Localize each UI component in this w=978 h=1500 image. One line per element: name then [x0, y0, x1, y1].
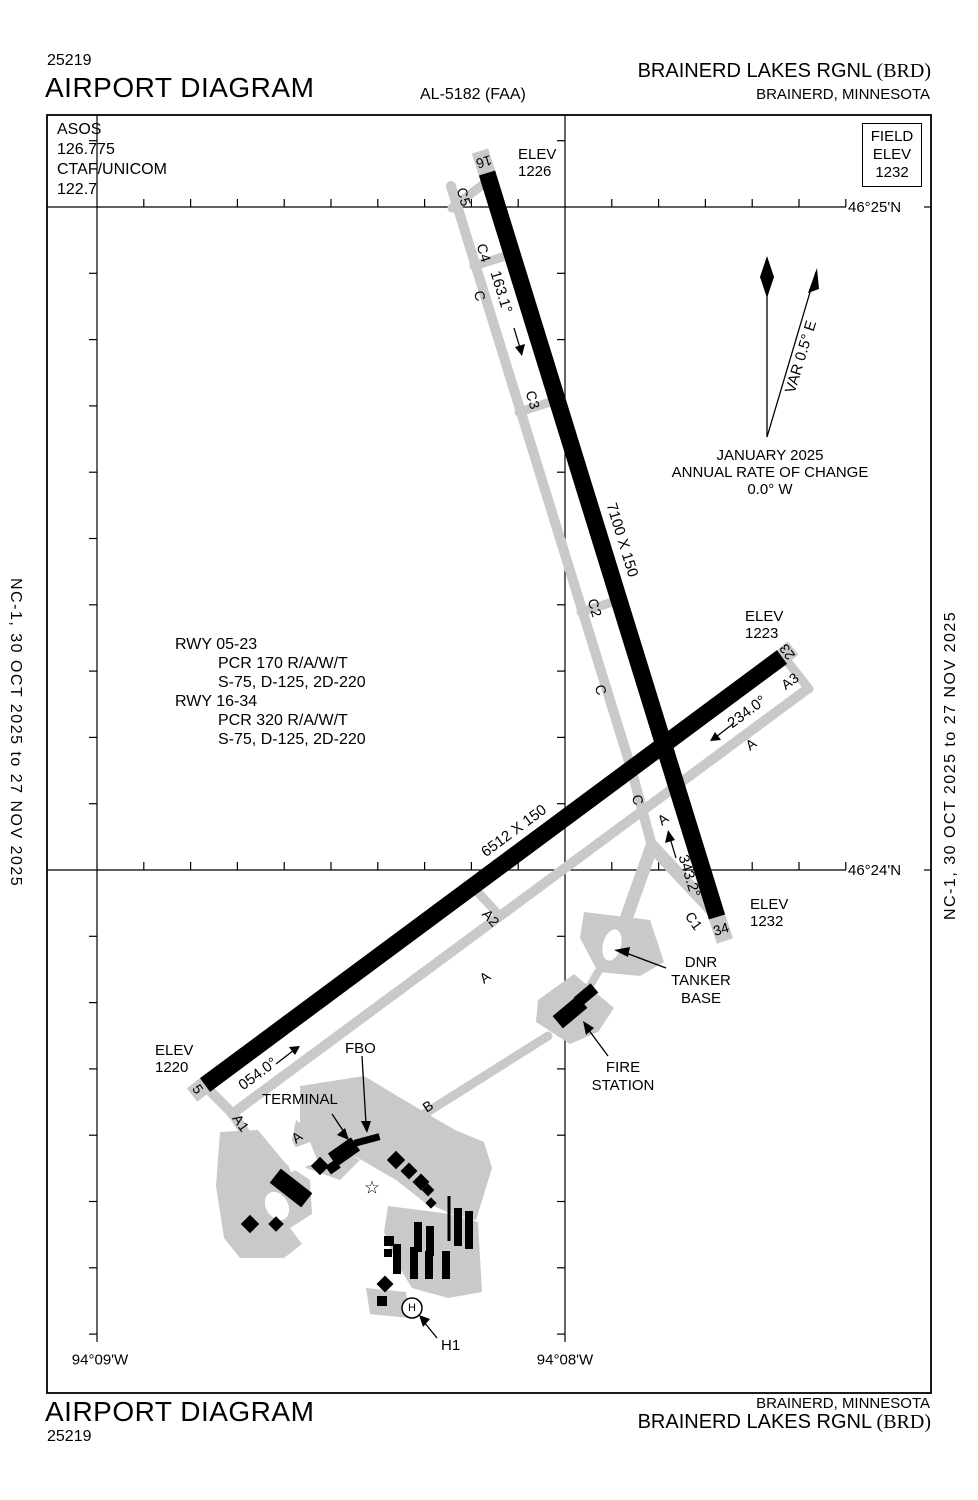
footer-airport-name: BRAINERD LAKES RGNL: [638, 1411, 873, 1433]
variation-rate-value: 0.0° W: [645, 481, 895, 498]
variation-date: JANUARY 2025: [645, 447, 895, 464]
page-title: AIRPORT DIAGRAM: [45, 72, 314, 104]
airport-title: BRAINERD LAKES RGNL (BRD): [638, 60, 931, 83]
elev-rwy23: ELEV1223: [745, 608, 783, 642]
helipad-h-symbol: H: [408, 1302, 416, 1314]
variation-rate-label: ANNUAL RATE OF CHANGE: [645, 464, 895, 481]
elev-rwy16: ELEV1226: [518, 146, 556, 180]
true-north-arrow-icon: [760, 256, 774, 298]
ctaf-label: CTAF/UNICOM: [57, 160, 167, 180]
terminal-label: TERMINAL: [262, 1091, 338, 1109]
runway-info-block: RWY 05-23 PCR 170 R/A/W/T S-75, D-125, 2…: [175, 635, 366, 749]
footer-airport-code: (BRD): [877, 1411, 931, 1433]
airport-city: BRAINERD, MINNESOTA: [756, 86, 930, 103]
comms-block: ASOS 126.775 CTAF/UNICOM 122.7: [57, 120, 167, 200]
dnr-tanker-base-label: DNR TANKER BASE: [646, 954, 756, 1008]
margin-note-right: NC-1, 30 OCT 2025 to 27 NOV 2025: [942, 575, 960, 920]
fbo-label: FBO: [345, 1040, 376, 1058]
ctaf-frequency: 122.7: [57, 180, 167, 200]
asos-label: ASOS: [57, 120, 167, 140]
magnetic-variation-note: JANUARY 2025 ANNUAL RATE OF CHANGE 0.0° …: [645, 447, 895, 498]
field-elev-label1: FIELD: [863, 128, 921, 146]
doc-number-top: 25219: [47, 52, 92, 70]
latitude-top-label: 46°25'N: [848, 199, 901, 216]
elev-rwy34: ELEV1232: [750, 896, 788, 930]
field-elev-value: 1232: [863, 164, 921, 182]
rwy-1634-label: RWY 16-34: [175, 692, 366, 711]
fire-station-label: FIRE STATION: [568, 1059, 678, 1095]
longitude-left-label: 94°09'W: [72, 1352, 128, 1369]
rwy-0523-label: RWY 05-23: [175, 635, 366, 654]
footer-title: AIRPORT DIAGRAM: [45, 1396, 314, 1428]
rwy-0523-pcr: PCR 170 R/A/W/T: [218, 654, 366, 673]
magnetic-north-arrow-icon: [808, 268, 819, 293]
margin-note-left: NC-1, 30 OCT 2025 to 27 NOV 2025: [6, 578, 24, 887]
airport-diagram-page: 25219 AIRPORT DIAGRAM AL-5182 (FAA) BRAI…: [0, 0, 978, 1500]
footer-city: BRAINERD, MINNESOTA: [756, 1395, 930, 1412]
latitude-bottom-label: 46°24'N: [848, 862, 901, 879]
runway-16-34: [487, 173, 717, 917]
footer-airport-title: BRAINERD LAKES RGNL (BRD): [638, 1411, 931, 1434]
doc-number-bottom: 25219: [47, 1428, 92, 1446]
helipad-h1-label: H1: [441, 1337, 460, 1355]
rwy-1634-pcr: PCR 320 R/A/W/T: [218, 711, 366, 730]
chart-code: AL-5182 (FAA): [420, 86, 526, 104]
airport-code: (BRD): [877, 60, 931, 82]
airport-diagram-graphics: [0, 0, 978, 1500]
field-elev-label2: ELEV: [863, 146, 921, 164]
taxiway-c: [451, 186, 631, 768]
longitude-right-label: 94°08'W: [537, 1352, 593, 1369]
airport-name: BRAINERD LAKES RGNL: [638, 60, 873, 82]
star-icon: ☆: [364, 1178, 380, 1199]
field-elev-box: FIELD ELEV 1232: [862, 123, 922, 187]
asos-frequency: 126.775: [57, 140, 167, 160]
rwy-1634-weight: S-75, D-125, 2D-220: [218, 730, 366, 749]
rwy-0523-weight: S-75, D-125, 2D-220: [218, 673, 366, 692]
elev-rwy5: ELEV1220: [155, 1042, 193, 1076]
